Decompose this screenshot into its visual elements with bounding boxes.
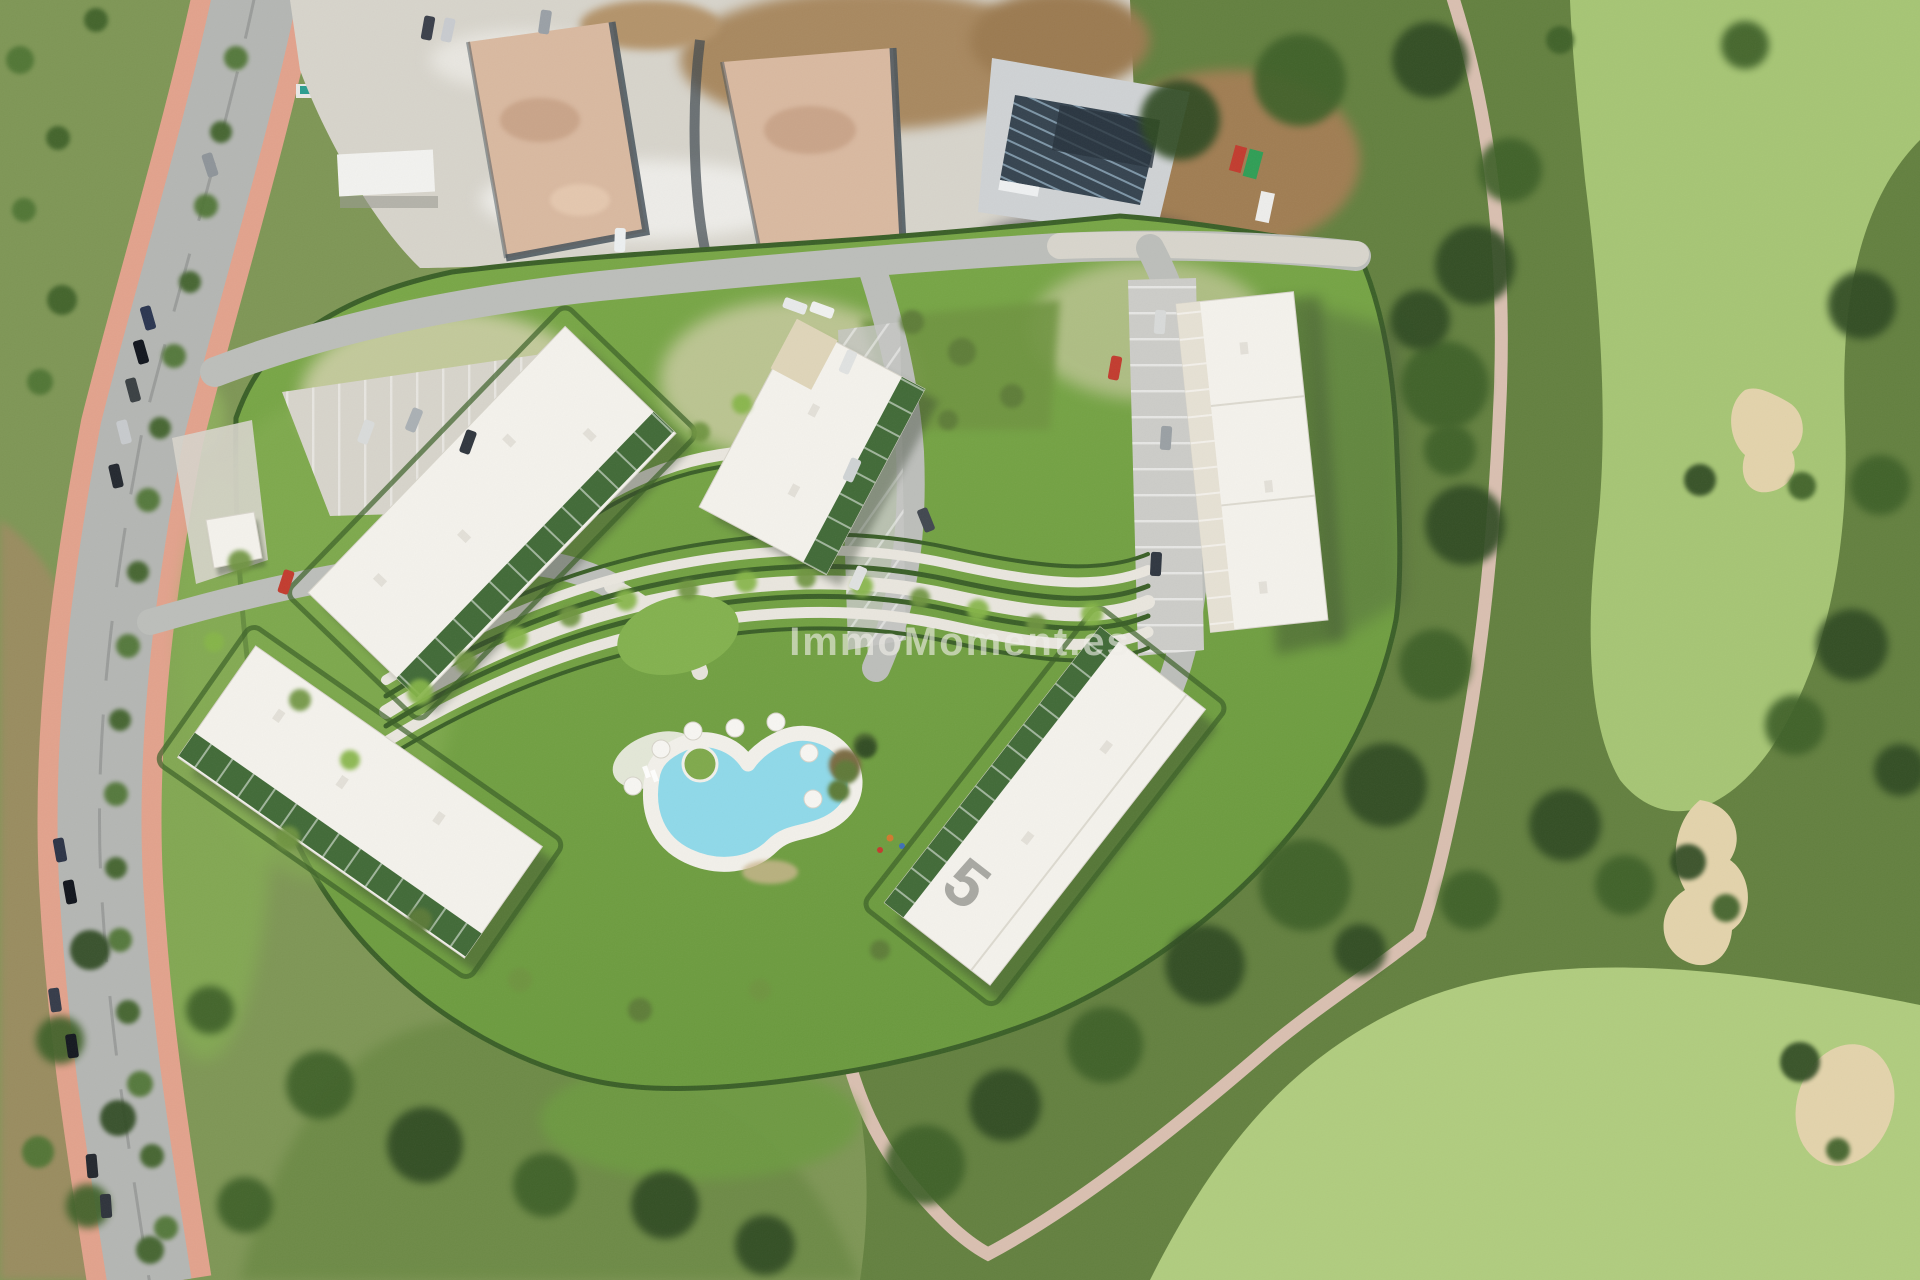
aerial-photo: 5 ImmoMoment.es <box>0 0 1920 1280</box>
aerial-scene: 5 ImmoMoment.es <box>0 0 1920 1280</box>
photo-grain <box>0 0 1920 1280</box>
